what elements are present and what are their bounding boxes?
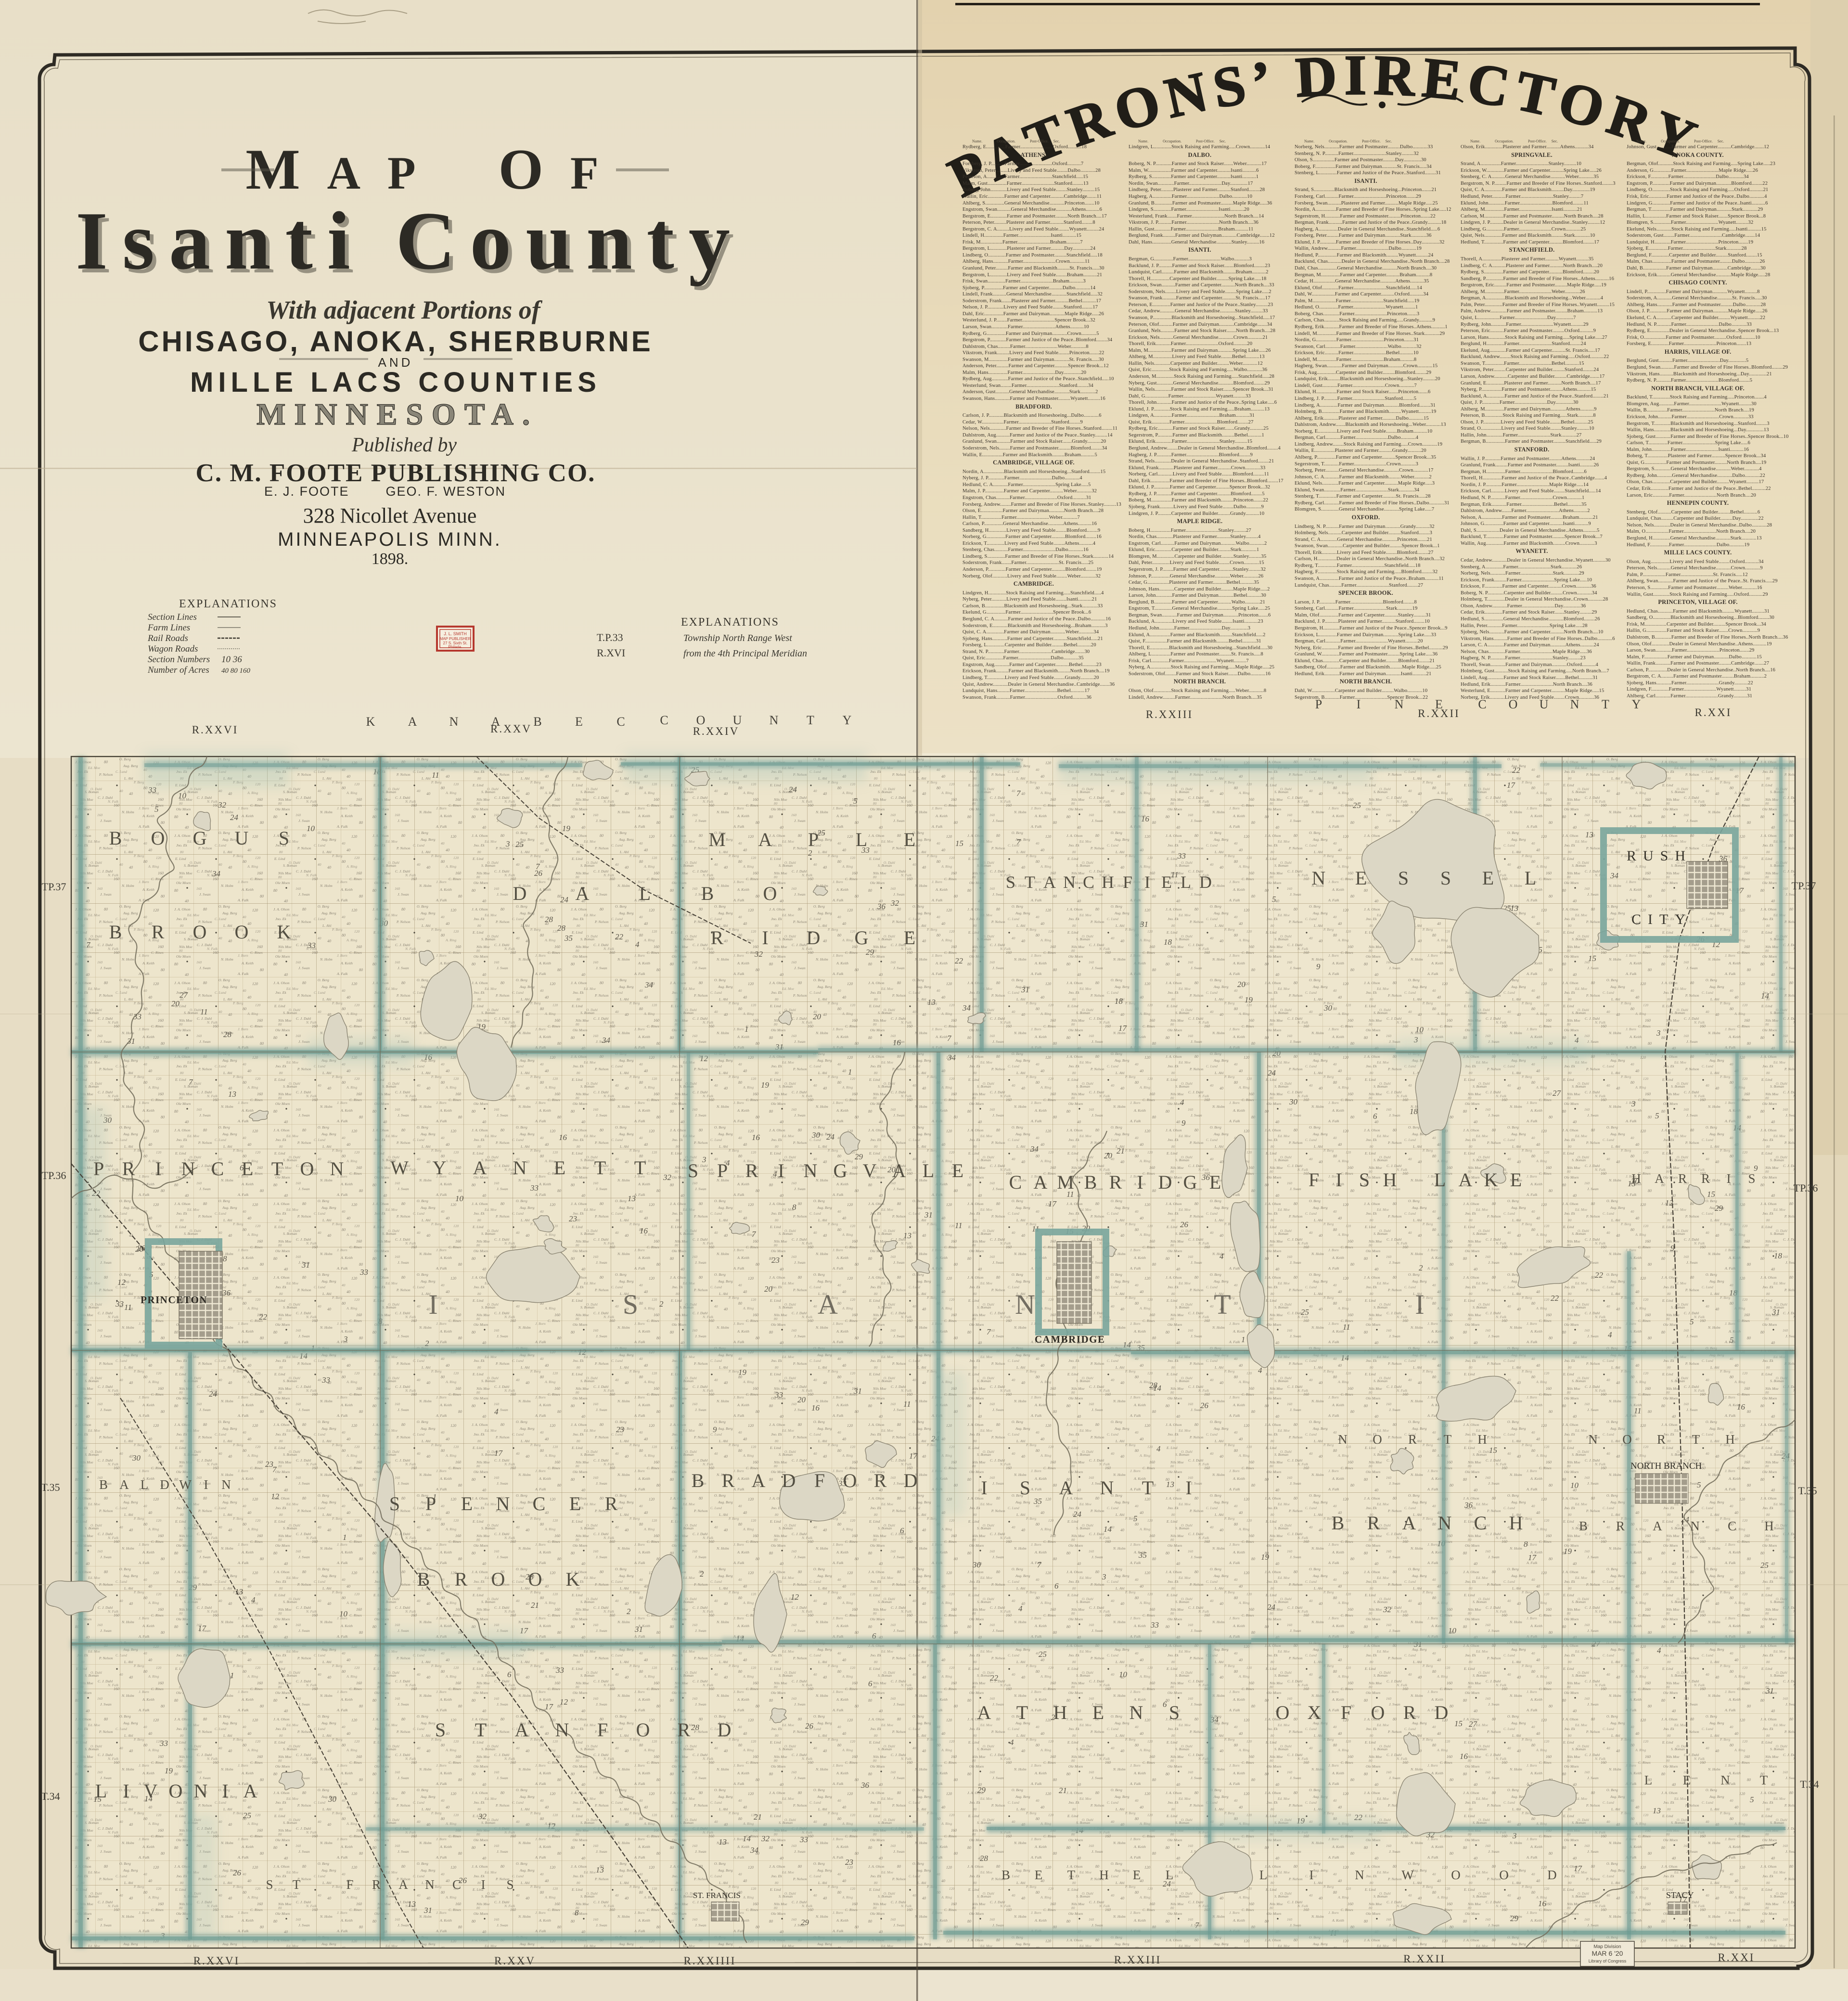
svg-text:A: A [244,1780,257,1802]
svg-text:N: N [425,1877,435,1892]
svg-text:T: T [634,1157,646,1179]
svg-text:T.34: T.34 [1800,1778,1819,1790]
svg-text:N: N [513,1157,527,1179]
svg-text:B: B [701,883,714,904]
svg-text:V: V [144,1780,158,1802]
svg-text:EXPLANATIONS: EXPLANATIONS [179,598,277,610]
svg-text:T.P.33: T.P.33 [597,631,623,643]
svg-text:B: B [1332,1512,1345,1534]
svg-text:A: A [1034,1171,1048,1193]
svg-text:A: A [818,1289,838,1320]
svg-text:C: C [1009,1171,1022,1193]
svg-text:B: B [1084,1171,1097,1193]
svg-text:C: C [533,1493,546,1514]
svg-text:I: I [1144,872,1150,892]
svg-text:T: T [1760,1773,1768,1787]
svg-text:Number of Acres: Number of Acres [147,665,209,675]
svg-text:T.35: T.35 [41,1481,60,1493]
svg-text:I: I [1335,1169,1342,1191]
svg-text:N: N [1312,867,1326,889]
svg-text:N: N [1588,1432,1598,1447]
svg-text:Name. Occupation: Name. Occupation. Post-Office. Sec. [1636,139,1724,143]
svg-text:L: L [1181,872,1191,892]
svg-text:D: D [904,1470,918,1491]
svg-text:F: F [1123,872,1132,892]
svg-text:B: B [109,921,122,943]
svg-text:L: L [141,1477,149,1492]
svg-text:Published by: Published by [351,434,457,456]
svg-text:R.XXI: R.XXI [1695,706,1732,718]
svg-text:L: L [95,1780,107,1802]
svg-text:R.XXII: R.XXII [1418,707,1460,719]
svg-text:S: S [435,1719,446,1741]
svg-text:Name. Occupation: Name. Occupation. Post-Office. Sec. [1138,139,1226,143]
svg-text:TP.37: TP.37 [42,881,66,893]
svg-text:O: O [491,1568,505,1590]
svg-text:A: A [473,1157,487,1179]
svg-text:CHISAGO, ANOKA, SHERBURNE: CHISAGO, ANOKA, SHERBURNE [138,325,653,358]
svg-text:T: T [594,1157,606,1179]
svg-text:A: A [119,1477,129,1492]
svg-text:K: K [566,1568,580,1590]
svg-text:J. L. SMITH: J. L. SMITH [444,631,467,636]
svg-text:R.XXV: R.XXV [490,723,532,735]
svg-text:L: L [1525,867,1536,889]
svg-text:S: S [279,827,289,849]
svg-text:R: R [1403,1702,1416,1723]
svg-text:H: H [1383,1169,1397,1191]
svg-text:I: I [155,1158,161,1180]
svg-text:R: R [605,1493,618,1514]
svg-text:R.XXIV: R.XXIV [693,725,740,737]
svg-text:O: O [1499,1868,1509,1882]
svg-text:328 Nicollet Avenue: 328 Nicollet Avenue [303,504,477,527]
svg-text:10 36: 10 36 [221,654,242,665]
svg-text:E: E [242,1158,253,1180]
svg-text:R.XXVI: R.XXVI [193,1955,240,1967]
svg-text:CITY: CITY [1631,911,1692,927]
svg-text:T: T [293,1877,301,1892]
svg-text:Library of Congress: Library of Congress [1589,1959,1627,1963]
svg-text:P: P [425,1493,436,1514]
svg-text:H: H [1053,1702,1067,1723]
svg-text:L: L [1259,1868,1268,1882]
svg-text:I: I [204,1477,208,1492]
svg-text:L: L [1434,1169,1446,1191]
svg-text:D: D [718,1719,731,1741]
svg-text:O: O [151,827,165,849]
svg-text:N: N [1720,1773,1730,1787]
svg-text:N: N [194,1780,208,1802]
svg-text:L: L [1166,1868,1174,1882]
svg-text:C: C [1728,1519,1736,1533]
svg-text:O: O [1276,1702,1290,1723]
svg-text:R: R [1657,1432,1666,1447]
svg-text:I: I [762,927,768,949]
svg-text:M: M [708,829,726,850]
svg-text:G: G [855,927,869,949]
svg-text:T: T [1692,1432,1700,1447]
svg-text:G: G [1183,1171,1197,1193]
svg-text:Johnson, Gust...........Farmer: Johnson, Gust...........Farmer and Carpe… [1627,144,1789,699]
svg-text:C: C [452,1877,461,1892]
svg-text:I: I [1727,1171,1731,1186]
svg-text:R: R [874,1470,887,1491]
svg-text:R.XXVI: R.XXVI [192,724,239,736]
svg-text:O: O [300,1158,314,1180]
svg-text:I: I [1415,1289,1424,1320]
svg-text:F: F [1309,1169,1319,1191]
svg-text:I: I [1137,1171,1143,1193]
svg-text:E: E [1482,867,1494,889]
svg-text:MILLE LACS COUNTIES: MILLE LACS COUNTIES [190,367,601,398]
svg-text:R.XXIII: R.XXIII [1146,708,1193,720]
svg-text:C: C [1474,1512,1487,1534]
svg-text:A: A [758,829,772,850]
svg-text:E: E [904,927,915,949]
svg-text:X: X [1308,1702,1322,1723]
svg-text:W: W [1401,1868,1414,1882]
svg-text:R: R [372,1877,381,1892]
svg-text:S: S [1398,867,1409,889]
svg-text:N: N [555,1719,569,1741]
svg-text:O: O [636,1719,650,1741]
svg-text:O: O [193,921,207,943]
svg-text:N: N [1100,1477,1114,1499]
svg-text:D: D [782,1470,796,1491]
svg-text:I: I [222,1780,228,1802]
svg-text:E: E [904,829,915,850]
svg-text:N: N [1438,1512,1452,1534]
svg-text:E: E [1209,1171,1221,1193]
svg-text:N: N [1338,1432,1347,1447]
svg-text:S: S [1440,867,1451,889]
svg-text:A: A [1655,1171,1664,1186]
svg-text:Name. Occupation: Name. Occupation. Post-Office. Sec. [1304,139,1392,143]
svg-text:40 80 160: 40 80 160 [221,667,251,675]
svg-text:I: I [1185,1477,1192,1499]
svg-text:R.XXIIII: R.XXIIII [684,1955,736,1967]
svg-text:R: R [678,1719,691,1741]
svg-text:H: H [1725,1432,1735,1447]
svg-text:T.35: T.35 [1798,1485,1817,1497]
svg-text:E: E [952,1160,963,1181]
svg-text:F: F [597,1719,608,1741]
svg-text:Section Lines: Section Lines [148,612,197,622]
svg-text:C: C [1478,697,1486,711]
svg-text:E: E [1510,1169,1522,1191]
svg-text:MAR 6 '20: MAR 6 '20 [1592,1950,1623,1957]
svg-text:L: L [1644,1773,1653,1787]
svg-text:G: G [834,1160,847,1181]
svg-text:P: P [93,1158,104,1180]
svg-text:R: R [1701,1171,1710,1186]
svg-text:I: I [1357,697,1361,711]
svg-text:RUSH: RUSH [1627,848,1692,864]
svg-text:F: F [814,1470,825,1491]
svg-text:C: C [1083,872,1094,892]
svg-text:R.XXV: R.XXV [494,1955,536,1967]
svg-text:E: E [461,1493,473,1514]
svg-text:O: O [235,921,249,943]
svg-text:B: B [109,827,122,849]
svg-text:D: D [1158,1171,1172,1193]
svg-text:N: N [770,713,779,727]
svg-text:N: N [1129,1702,1143,1723]
svg-text:T.34: T.34 [41,1790,60,1802]
svg-text:I: I [123,1780,129,1802]
svg-text:MINNESOTA.: MINNESOTA. [257,397,539,431]
svg-text:Y: Y [433,1157,447,1179]
svg-text:B: B [1001,1868,1010,1882]
svg-text:E: E [1133,1868,1141,1882]
svg-text:S: S [266,1877,273,1892]
svg-text:A: A [1402,1512,1416,1534]
svg-text:L: L [639,883,651,904]
svg-text:S: S [1169,1702,1180,1723]
svg-text:T: T [1025,872,1035,892]
svg-text:Section Numbers: Section Numbers [148,654,210,665]
svg-text:O: O [169,1780,183,1802]
svg-text:T: T [475,1719,487,1741]
svg-text:S: S [688,1160,698,1181]
svg-text:K: K [277,921,291,943]
svg-text:A: A [398,1877,408,1892]
svg-text:F: F [1341,1702,1351,1723]
svg-text:CAMBRIDGE: CAMBRIDGE [1035,1334,1105,1345]
svg-text:H: H [1477,1432,1487,1447]
svg-text:B: B [533,715,541,729]
svg-text:W: W [390,1157,409,1179]
svg-text:E: E [1355,867,1367,889]
svg-text:I: I [428,1289,437,1320]
svg-text:E: E [1092,1702,1104,1723]
svg-text:I: I [1309,1868,1314,1882]
svg-text:MINNEAPOLIS MINN.: MINNEAPOLIS MINN. [278,529,502,550]
svg-text:A: A [408,715,417,729]
svg-text:R.XXIII: R.XXIII [1114,1954,1161,1966]
svg-text:R: R [745,1160,758,1181]
svg-text:O: O [528,1568,542,1590]
svg-text:H: H [1631,1171,1641,1186]
svg-text:T: T [1602,697,1609,711]
svg-text:C: C [616,715,625,729]
svg-text:R: R [1109,1171,1122,1193]
svg-text:C. M. FOOTE PUBLISHING CO.: C. M. FOOTE PUBLISHING CO. [196,459,596,487]
svg-text:M: M [1057,1171,1074,1193]
svg-text:Y: Y [1632,697,1641,711]
svg-text:E: E [1035,1868,1043,1882]
svg-text:R: R [152,921,165,943]
svg-text:I: I [778,1160,784,1181]
svg-text:With adjacent Portions of: With adjacent Portions of [266,295,543,324]
svg-text:E. J. FOOTE GEO. F. WES: E. J. FOOTE GEO. F. WESTON [264,484,506,499]
svg-text:A: A [1653,1519,1662,1533]
svg-text:E: E [569,1493,581,1514]
svg-text:D: D [160,1477,169,1492]
svg-text:N: N [221,1477,231,1492]
svg-text:N: N [496,1493,510,1514]
svg-text:K: K [1484,1169,1498,1191]
svg-text:MAP PUBLISHER: MAP PUBLISHER [440,637,471,641]
svg-text:U: U [1540,697,1549,711]
svg-text:K: K [366,715,375,729]
svg-text:E: E [1161,872,1172,892]
svg-text:TP.36: TP.36 [42,1169,66,1181]
svg-text:A: A [1059,1477,1073,1499]
svg-text:A: A [515,1719,529,1741]
svg-text:C: C [660,713,668,727]
svg-text:Rail Roads: Rail Roads [147,633,188,643]
svg-text:R: R [711,927,724,949]
svg-text:T: T [1142,1477,1154,1499]
svg-text:N: N [449,715,459,729]
svg-text:H: H [1764,1519,1774,1533]
svg-text:O: O [843,1470,857,1491]
svg-text:R.XXI: R.XXI [1718,1951,1755,1963]
svg-text:PRINCETON: PRINCETON [141,1294,207,1306]
svg-text:STACY: STACY [1666,1890,1694,1900]
svg-text:D: D [807,927,821,949]
svg-text:S: S [506,1877,513,1892]
svg-text:O: O [1373,1432,1382,1447]
svg-text:U: U [235,827,249,849]
svg-text:A: A [752,1470,766,1491]
svg-text:N: N [1015,1289,1035,1320]
svg-text:V: V [863,1160,877,1181]
svg-text:Name. Occupation: Name. Occupation. Post-Office. Sec. [1470,139,1558,143]
svg-text:E: E [575,715,583,729]
svg-text:L: L [856,829,867,850]
svg-text:W: W [179,1477,192,1492]
svg-text:D: D [1435,1702,1449,1723]
svg-text:R: R [1616,1519,1625,1533]
svg-text:S: S [1006,872,1015,892]
svg-text:I: I [481,1877,486,1892]
svg-text:S: S [389,1493,400,1514]
svg-text:O: O [1371,1702,1385,1723]
svg-text:H: H [1099,1868,1109,1882]
svg-text:R: R [1678,1171,1687,1186]
svg-text:N: N [1690,1519,1700,1533]
svg-text:I: I [981,1477,987,1499]
svg-text:R: R [1367,1512,1380,1534]
svg-text:C: C [211,1158,224,1180]
svg-text:Norberg, Nels...........Farmer: Norberg, Nels...........Farmer and Postm… [1295,144,1451,700]
svg-text:N: N [1395,697,1404,711]
svg-text:S: S [1020,1477,1030,1499]
svg-text:N: N [1570,697,1579,711]
svg-text:D: D [513,883,527,904]
svg-text:TP.36: TP.36 [1794,1182,1818,1194]
svg-text:T: T [1067,1868,1076,1882]
svg-text:S: S [1359,1169,1370,1191]
svg-text:O: O [1451,1868,1461,1882]
svg-text:N: N [804,1160,818,1181]
svg-text:B: B [1579,1519,1588,1533]
svg-text:P: P [1315,697,1322,711]
svg-text:T: T [271,1158,283,1180]
svg-text:G: G [193,827,207,849]
svg-text:Township North Range West: Township North Range West [683,633,792,643]
svg-text:A: A [977,1702,991,1723]
svg-text:Farm Lines: Farm Lines [147,623,190,633]
svg-text:A: A [892,1160,906,1181]
svg-text:B: B [692,1470,705,1491]
svg-text:1898.: 1898. [372,550,409,568]
svg-text:L: L [923,1160,934,1181]
svg-text:NORTH BRANCH: NORTH BRANCH [1630,1461,1702,1471]
svg-text:R.XVI: R.XVI [597,647,625,659]
svg-text:H: H [1509,1512,1523,1534]
svg-text:T: T [1444,1432,1452,1447]
svg-text:O: O [1509,697,1518,711]
svg-text:E: E [554,1157,565,1179]
svg-text:O: O [763,883,777,904]
svg-text:T: T [1214,1289,1231,1320]
svg-text:O: O [1622,1432,1632,1447]
svg-text:T: T [807,713,814,727]
svg-text:D: D [1199,872,1212,892]
svg-text:from the 4th Principal Meridia: from the 4th Principal Meridian [683,648,807,659]
svg-text:Name. Occupation: Name. Occupation. Post-Office. Sec. [972,139,1060,143]
svg-text:R: R [1408,1432,1417,1447]
svg-text:S: S [1748,1171,1755,1186]
svg-text:Y: Y [843,713,852,727]
svg-text:N: N [1063,872,1076,892]
svg-text:R: R [455,1568,468,1590]
svg-text:A: A [1043,872,1056,892]
svg-text:Isanti County: Isanti County [76,195,744,287]
svg-text:H: H [1102,872,1114,892]
svg-text:TP.37: TP.37 [1792,880,1816,892]
svg-text:F: F [346,1877,353,1892]
svg-text:N: N [1355,1868,1364,1882]
svg-text:ST. FRANCIS: ST. FRANCIS [693,1891,741,1900]
svg-text:A: A [1459,1169,1473,1191]
svg-text:R: R [722,1470,735,1491]
svg-text:N: N [330,1158,344,1180]
svg-text:S: S [623,1289,638,1320]
svg-text:R: R [122,1158,135,1180]
svg-text:E: E [1683,1773,1691,1787]
svg-text:B: B [99,1477,108,1492]
svg-text:A: A [576,883,590,904]
svg-text:EXPLANATIONS: EXPLANATIONS [681,616,779,629]
svg-text:R.XXII: R.XXII [1403,1953,1446,1965]
svg-text:Philada.: Philada. [449,645,462,649]
svg-text:Wagon Roads: Wagon Roads [148,644,198,654]
svg-text:Map Division: Map Division [1593,1944,1621,1950]
svg-text:P: P [717,1160,728,1181]
svg-text:T: T [1016,1702,1028,1723]
svg-text:N: N [181,1158,195,1180]
svg-text:D: D [1547,1868,1557,1882]
svg-text:B: B [417,1568,430,1590]
svg-text:P: P [808,829,819,850]
